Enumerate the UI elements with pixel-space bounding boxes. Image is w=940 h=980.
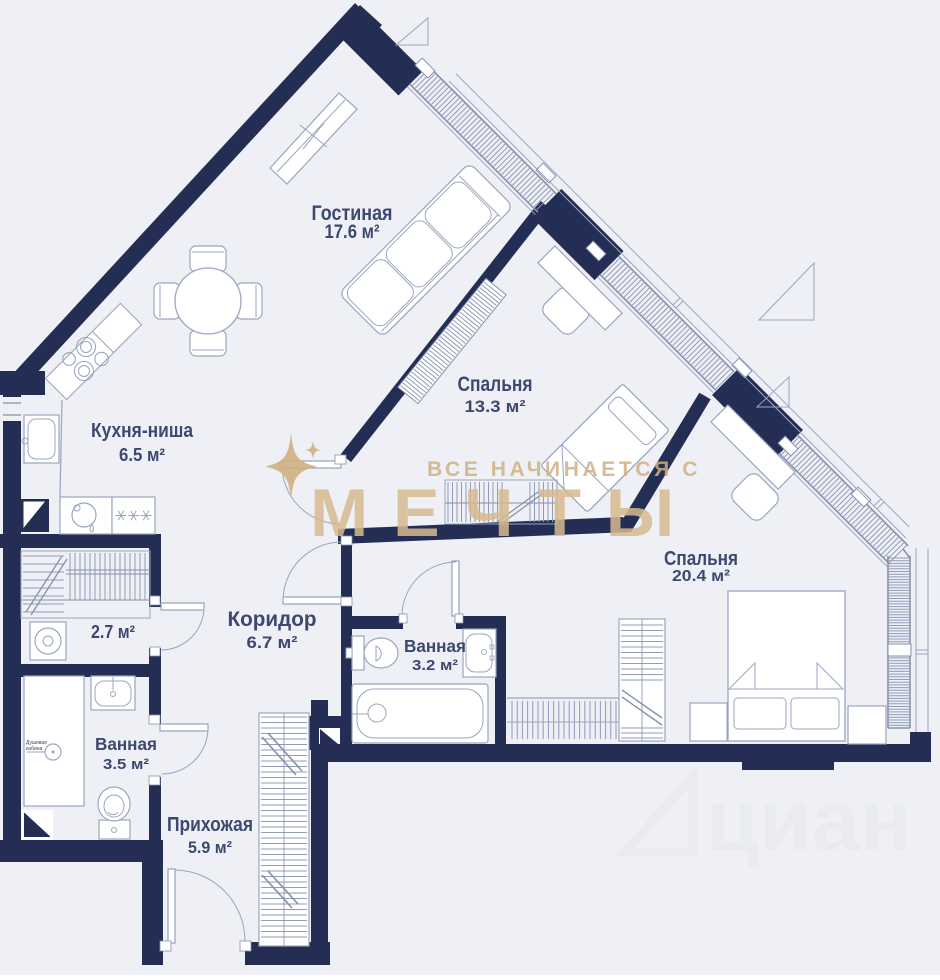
- svg-text:Коридор: Коридор: [228, 608, 317, 631]
- svg-text:Прихожая: Прихожая: [167, 814, 253, 836]
- svg-text:6.7 м²: 6.7 м²: [247, 633, 298, 652]
- svg-text:2.7 м²: 2.7 м²: [91, 622, 135, 642]
- svg-text:Кухня-ниша: Кухня-ниша: [91, 420, 194, 442]
- svg-text:Спальня: Спальня: [664, 548, 738, 570]
- svg-text:3.2 м²: 3.2 м²: [412, 657, 458, 674]
- svg-text:6.5 м²: 6.5 м²: [119, 445, 165, 465]
- svg-text:МЕЧТЫ: МЕЧТЫ: [310, 475, 699, 551]
- svg-text:17.6 м²: 17.6 м²: [325, 222, 380, 243]
- svg-text:Ванная: Ванная: [95, 734, 157, 754]
- svg-text:кабина: кабина: [26, 746, 42, 752]
- svg-text:3.5 м²: 3.5 м²: [103, 756, 149, 773]
- svg-text:циан: циан: [706, 773, 912, 869]
- svg-text:13.3 м²: 13.3 м²: [465, 397, 526, 416]
- svg-text:Спальня: Спальня: [458, 373, 533, 396]
- svg-text:20.4 м²: 20.4 м²: [672, 568, 730, 585]
- svg-text:5.9 м²: 5.9 м²: [188, 838, 232, 857]
- svg-text:Ванная: Ванная: [404, 636, 466, 656]
